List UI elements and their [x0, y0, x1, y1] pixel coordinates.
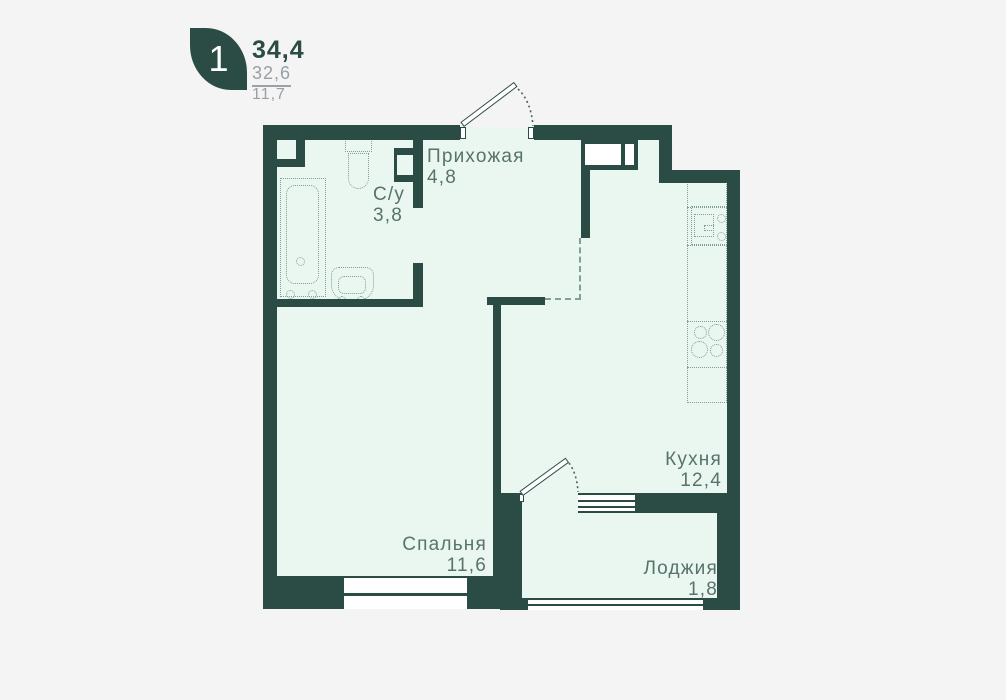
window-pane-line: [344, 593, 467, 596]
stove-burner: [708, 324, 725, 341]
toilet-bowl: [348, 153, 369, 189]
window-icon: [578, 493, 635, 513]
stove-burner: [691, 341, 708, 358]
window-pane-line: [578, 506, 635, 508]
wall-left: [263, 125, 277, 609]
shaft-wall: [394, 148, 397, 182]
room-area: 12,4: [665, 470, 722, 491]
window-pane-line: [578, 500, 635, 502]
counter-divider: [687, 245, 727, 246]
floor-plan-page: { "unit_card": { "rooms_badge": "1", "to…: [0, 0, 1006, 700]
room-label-bathroom: С/у 3,8: [373, 184, 405, 226]
wardrobe-section: [625, 144, 634, 165]
leaf-badge-icon: 1: [190, 28, 247, 90]
window-pane-line: [528, 604, 703, 606]
sink-inner: [338, 276, 366, 294]
wall-top-right: [534, 125, 672, 140]
wall-bedroom-top: [487, 297, 545, 305]
counter-divider: [687, 321, 727, 322]
wall-hallway-kitchen: [581, 168, 590, 238]
window-icon: [528, 600, 703, 610]
wall-loggia-right: [717, 513, 729, 610]
room-area: 4,8: [427, 167, 525, 188]
room-name: С/у: [373, 184, 405, 205]
room-label-kitchen: Кухня 12,4: [665, 449, 722, 491]
faucet-knob: [717, 232, 726, 241]
stove-burner: [710, 344, 723, 357]
room-name: Лоджия: [643, 558, 718, 579]
faucet-knob: [717, 214, 726, 223]
duct-wall: [277, 159, 305, 167]
stove-icon: [694, 326, 707, 339]
room-area: 1,8: [643, 579, 718, 600]
wall-step-vertical: [659, 138, 672, 172]
kitchen-area-value: 11,7: [252, 86, 286, 104]
bathtub-inner: [286, 185, 319, 284]
total-area: 34,4: [252, 36, 305, 65]
living-area: 32,6: [252, 63, 291, 87]
wall-loggia-left: [493, 493, 522, 609]
room-name: Кухня: [665, 449, 722, 470]
faucet-spout: [704, 225, 714, 231]
bathtub-foot: [286, 290, 295, 299]
wall-bathroom-bottom: [270, 299, 423, 307]
room-name: Спальня: [402, 534, 487, 555]
entry-door-icon: [460, 82, 517, 127]
wall-top-left: [263, 125, 460, 140]
room-area: 11,6: [402, 555, 487, 576]
wall-step-horizontal: [659, 170, 740, 183]
room-label-bedroom: Спальня 11,6: [402, 534, 487, 576]
rooms-count: 1: [208, 41, 228, 77]
toilet-icon: [345, 139, 372, 152]
zone-dashed-line-horizontal: [545, 298, 581, 300]
zone-dashed-line-vertical: [579, 238, 581, 300]
room-area: 3,8: [373, 205, 405, 226]
wall-bedroom-right: [493, 297, 501, 495]
door-jamb: [528, 127, 534, 139]
bathtub-foot: [308, 290, 317, 299]
wall-bathroom-right-upper: [413, 125, 423, 208]
counter-divider: [687, 367, 727, 368]
room-label-hallway: Прихожая 4,8: [427, 146, 525, 188]
door-jamb: [460, 127, 466, 139]
wardrobe-section: [585, 144, 621, 165]
window-icon: [344, 578, 467, 609]
wall-kitchen-loggia: [635, 493, 740, 513]
entry-threshold: [466, 127, 528, 140]
room-label-loggia: Лоджия 1,8: [643, 558, 718, 600]
bathtub-drain: [296, 257, 305, 266]
room-name: Прихожая: [427, 146, 525, 167]
